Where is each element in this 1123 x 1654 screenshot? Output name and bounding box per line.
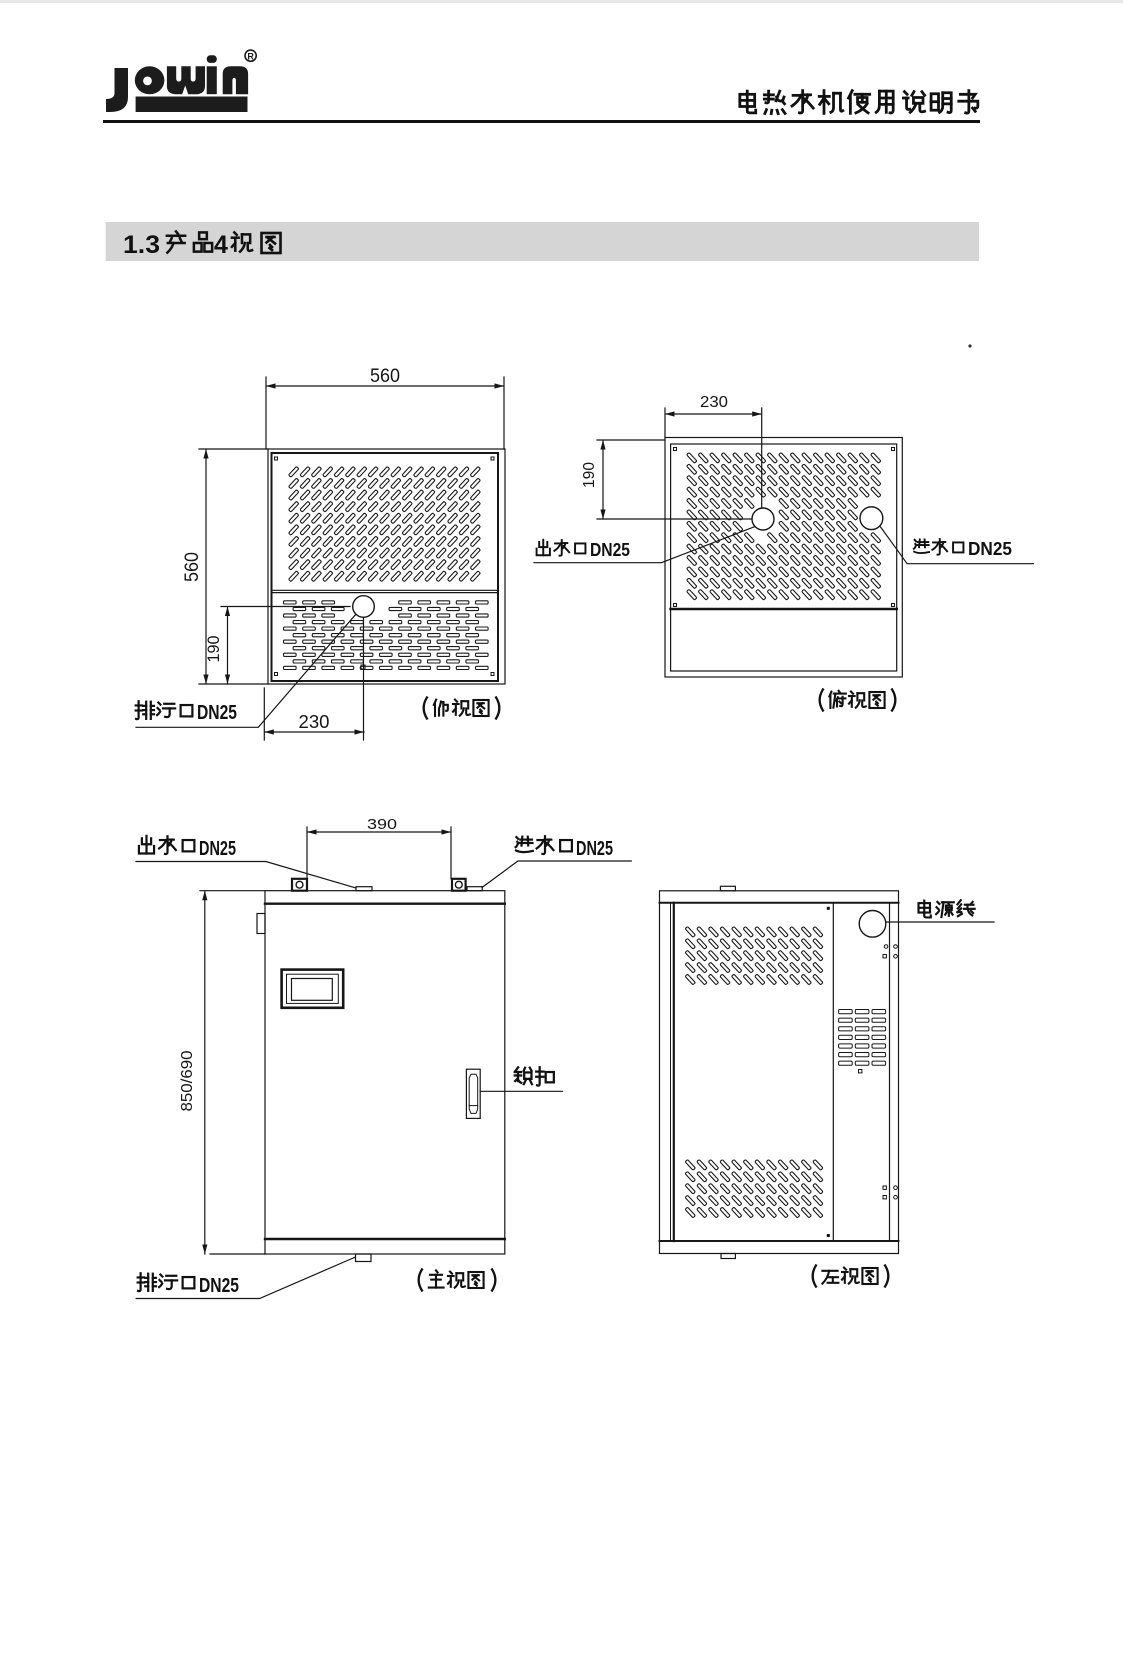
svg-text:DN25: DN25 [590, 540, 630, 560]
svg-text:DN25: DN25 [576, 838, 613, 860]
svg-text:DN25: DN25 [199, 838, 236, 860]
svg-text:230: 230 [299, 712, 330, 732]
svg-text:4: 4 [214, 231, 228, 259]
svg-text:390: 390 [367, 817, 397, 833]
svg-text:560: 560 [370, 366, 400, 387]
svg-text:190: 190 [581, 462, 598, 488]
svg-text:DN25: DN25 [197, 702, 237, 724]
svg-text:R: R [247, 52, 254, 62]
svg-text:850/690: 850/690 [179, 1050, 196, 1111]
svg-text:DN25: DN25 [968, 539, 1012, 559]
svg-text:230: 230 [700, 394, 728, 411]
svg-text:560: 560 [182, 552, 203, 582]
svg-text:1.3: 1.3 [123, 231, 160, 259]
svg-text:DN25: DN25 [199, 1275, 239, 1297]
svg-text:190: 190 [204, 636, 223, 663]
